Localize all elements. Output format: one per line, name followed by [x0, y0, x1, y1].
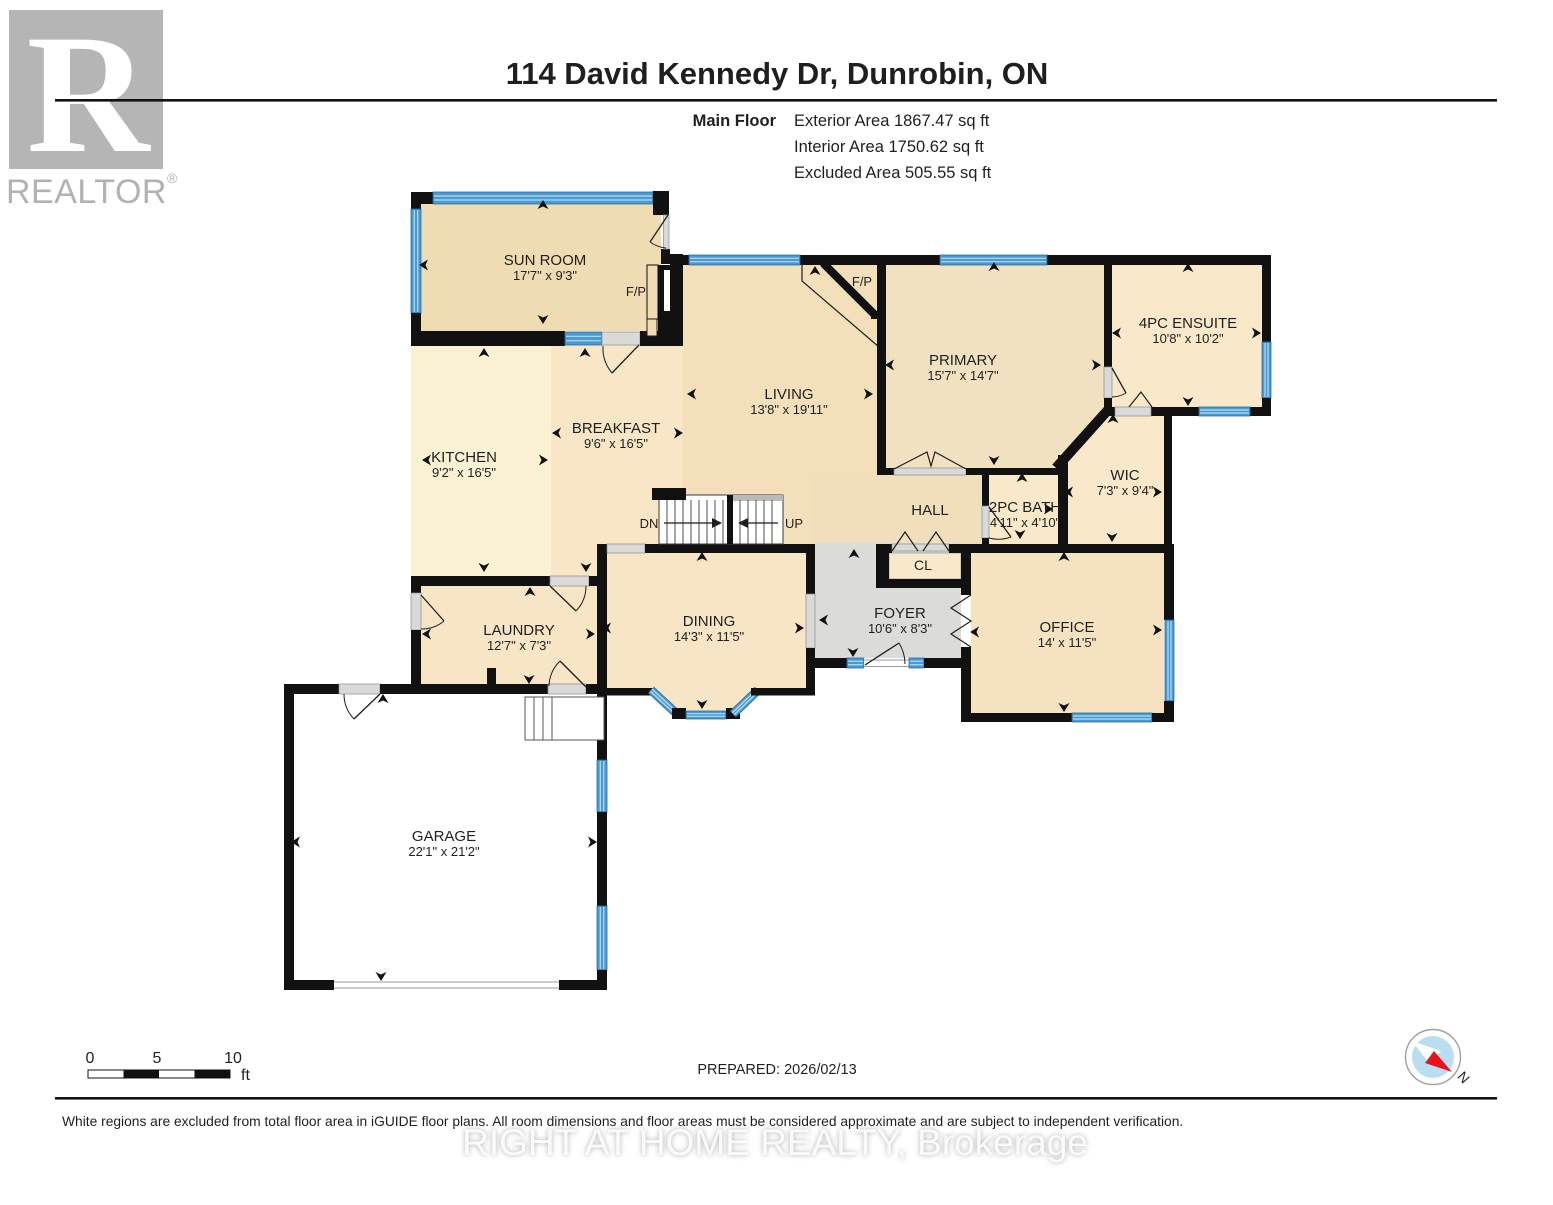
svg-text:14'3" x 11'5": 14'3" x 11'5": [674, 629, 745, 644]
svg-text:DN: DN: [640, 516, 659, 531]
svg-text:Excluded Area 505.55 sq ft: Excluded Area 505.55 sq ft: [794, 164, 992, 182]
svg-text:15'7" x 14'7": 15'7" x 14'7": [927, 368, 999, 383]
svg-text:10'6" x 8'3": 10'6" x 8'3": [868, 621, 932, 636]
svg-text:12'7" x 7'3": 12'7" x 7'3": [487, 638, 551, 653]
svg-text:PREPARED: 2026/02/13: PREPARED: 2026/02/13: [697, 1062, 856, 1078]
svg-text:UP: UP: [785, 516, 803, 531]
svg-text:22'1" x 21'2": 22'1" x 21'2": [408, 844, 480, 859]
svg-text:HALL: HALL: [911, 502, 949, 519]
svg-text:4PC ENSUITE: 4PC ENSUITE: [1139, 315, 1237, 332]
svg-text:9'2" x 16'5": 9'2" x 16'5": [432, 465, 496, 480]
svg-text:F/P: F/P: [626, 284, 646, 299]
svg-text:13'8" x 19'11": 13'8" x 19'11": [750, 402, 828, 417]
svg-text:SUN ROOM: SUN ROOM: [504, 252, 587, 269]
svg-text:10'8" x 10'2": 10'8" x 10'2": [1152, 331, 1224, 346]
svg-text:ft: ft: [241, 1067, 250, 1084]
svg-text:7'3" x 9'4": 7'3" x 9'4": [1097, 483, 1154, 498]
svg-text:Interior Area 1750.62 sq ft: Interior Area 1750.62 sq ft: [794, 138, 984, 156]
svg-text:RIGHT AT HOME REALTY, Brokerag: RIGHT AT HOME REALTY, Brokerage: [462, 1122, 1088, 1163]
svg-text:Main Floor: Main Floor: [693, 112, 777, 130]
svg-text:114 David Kennedy Dr, Dunrobin: 114 David Kennedy Dr, Dunrobin, ON: [506, 56, 1049, 91]
svg-text:14' x 11'5": 14' x 11'5": [1038, 635, 1097, 650]
svg-text:KITCHEN: KITCHEN: [431, 449, 497, 466]
svg-text:CL: CL: [914, 557, 932, 573]
svg-text:5: 5: [153, 1050, 162, 1067]
svg-text:PRIMARY: PRIMARY: [929, 352, 997, 369]
svg-text:17'7" x 9'3": 17'7" x 9'3": [513, 268, 577, 283]
svg-text:®: ®: [167, 170, 178, 186]
svg-text:9'6" x 16'5": 9'6" x 16'5": [584, 436, 648, 451]
svg-text:F/P: F/P: [852, 274, 872, 289]
svg-text:DINING: DINING: [683, 613, 736, 630]
svg-text:REALTOR: REALTOR: [6, 173, 167, 211]
svg-text:Exterior Area 1867.47 sq ft: Exterior Area 1867.47 sq ft: [794, 112, 990, 130]
svg-text:LIVING: LIVING: [764, 386, 813, 403]
svg-text:FOYER: FOYER: [874, 605, 926, 622]
svg-text:GARAGE: GARAGE: [412, 828, 476, 845]
svg-text:LAUNDRY: LAUNDRY: [483, 622, 554, 639]
svg-text:BREAKFAST: BREAKFAST: [572, 420, 660, 437]
svg-text:R: R: [27, 0, 152, 188]
svg-text:4'11" x 4'10": 4'11" x 4'10": [990, 515, 1061, 530]
svg-text:0: 0: [86, 1050, 95, 1067]
svg-text:2PC BATH: 2PC BATH: [989, 499, 1061, 516]
svg-text:WIC: WIC: [1110, 467, 1139, 484]
svg-text:10: 10: [224, 1050, 242, 1067]
svg-text:OFFICE: OFFICE: [1040, 619, 1095, 636]
